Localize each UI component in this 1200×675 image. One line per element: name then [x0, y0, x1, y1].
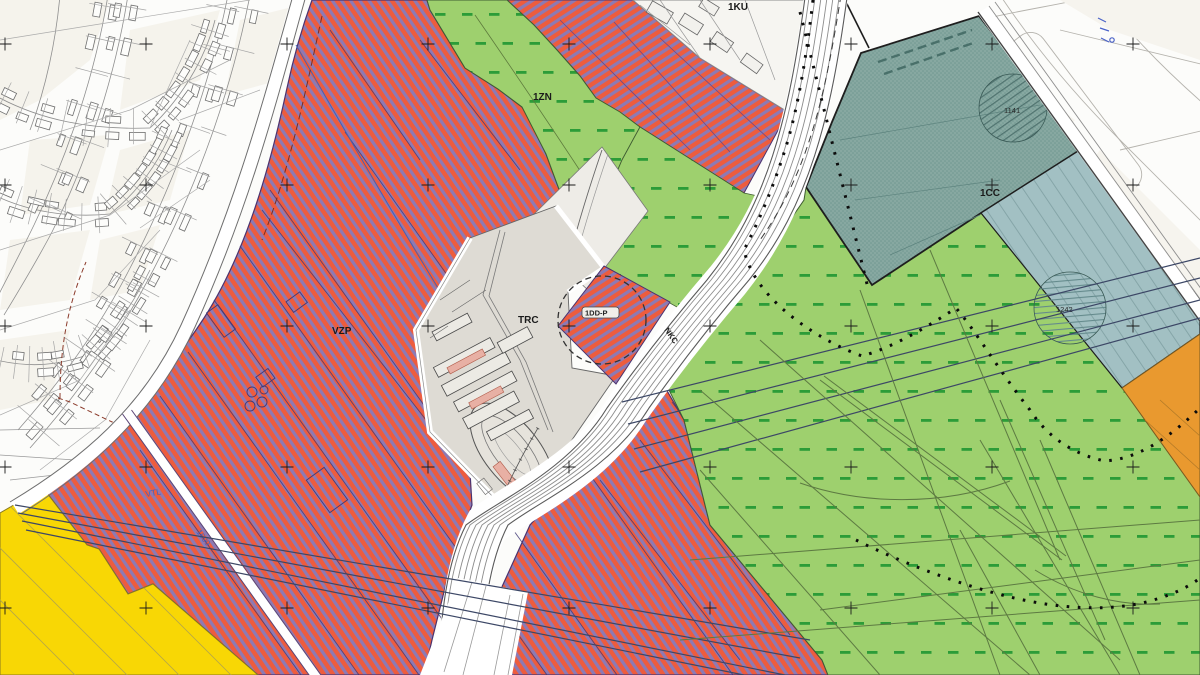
svg-text:1ZN: 1ZN — [533, 92, 552, 103]
svg-text:TRC: TRC — [518, 315, 539, 326]
svg-text:1DD-P: 1DD-P — [585, 309, 608, 318]
svg-text:1141: 1141 — [1004, 106, 1020, 115]
svg-text:1KU: 1KU — [728, 2, 748, 13]
svg-text:1CC: 1CC — [980, 188, 1000, 199]
svg-text:VZP: VZP — [332, 326, 352, 337]
